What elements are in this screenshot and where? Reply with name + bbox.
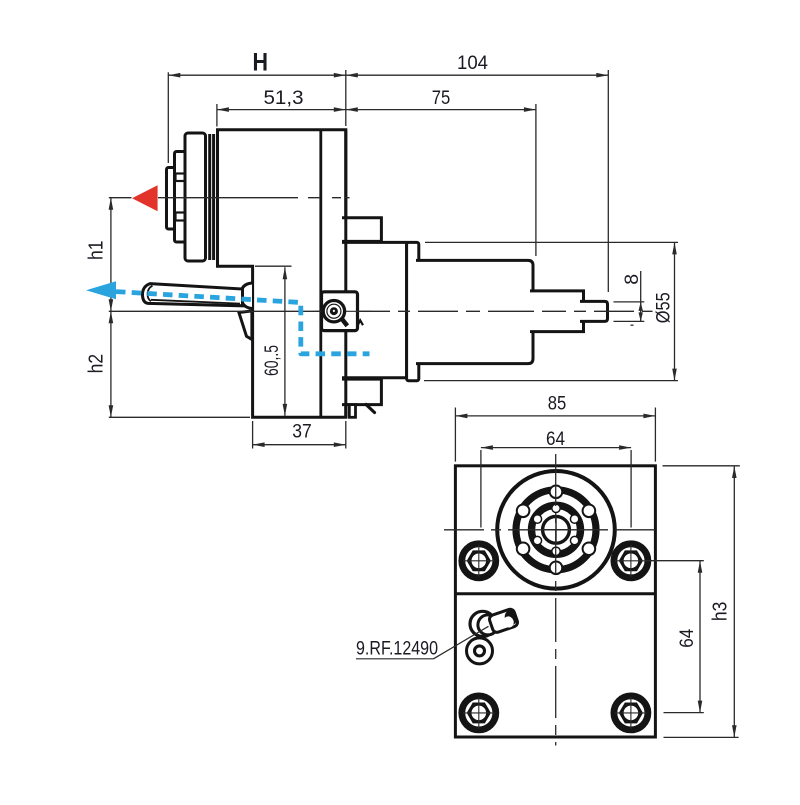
svg-text:75: 75 xyxy=(432,87,451,109)
svg-text:8: 8 xyxy=(621,274,643,285)
svg-text:64: 64 xyxy=(676,629,698,648)
svg-text:104: 104 xyxy=(457,52,488,74)
svg-text:Ø55: Ø55 xyxy=(653,292,675,323)
svg-text:64: 64 xyxy=(546,428,565,450)
svg-text:9.RF.12490: 9.RF.12490 xyxy=(356,638,438,659)
svg-text:51,3: 51,3 xyxy=(264,87,304,109)
svg-text:h3: h3 xyxy=(710,602,732,622)
svg-text:h2: h2 xyxy=(86,354,108,374)
svg-text:85: 85 xyxy=(548,392,567,414)
svg-text:60,.5: 60,.5 xyxy=(261,345,283,376)
svg-text:37: 37 xyxy=(292,421,312,443)
svg-text:h1: h1 xyxy=(86,241,108,260)
svg-text:H: H xyxy=(253,49,269,77)
